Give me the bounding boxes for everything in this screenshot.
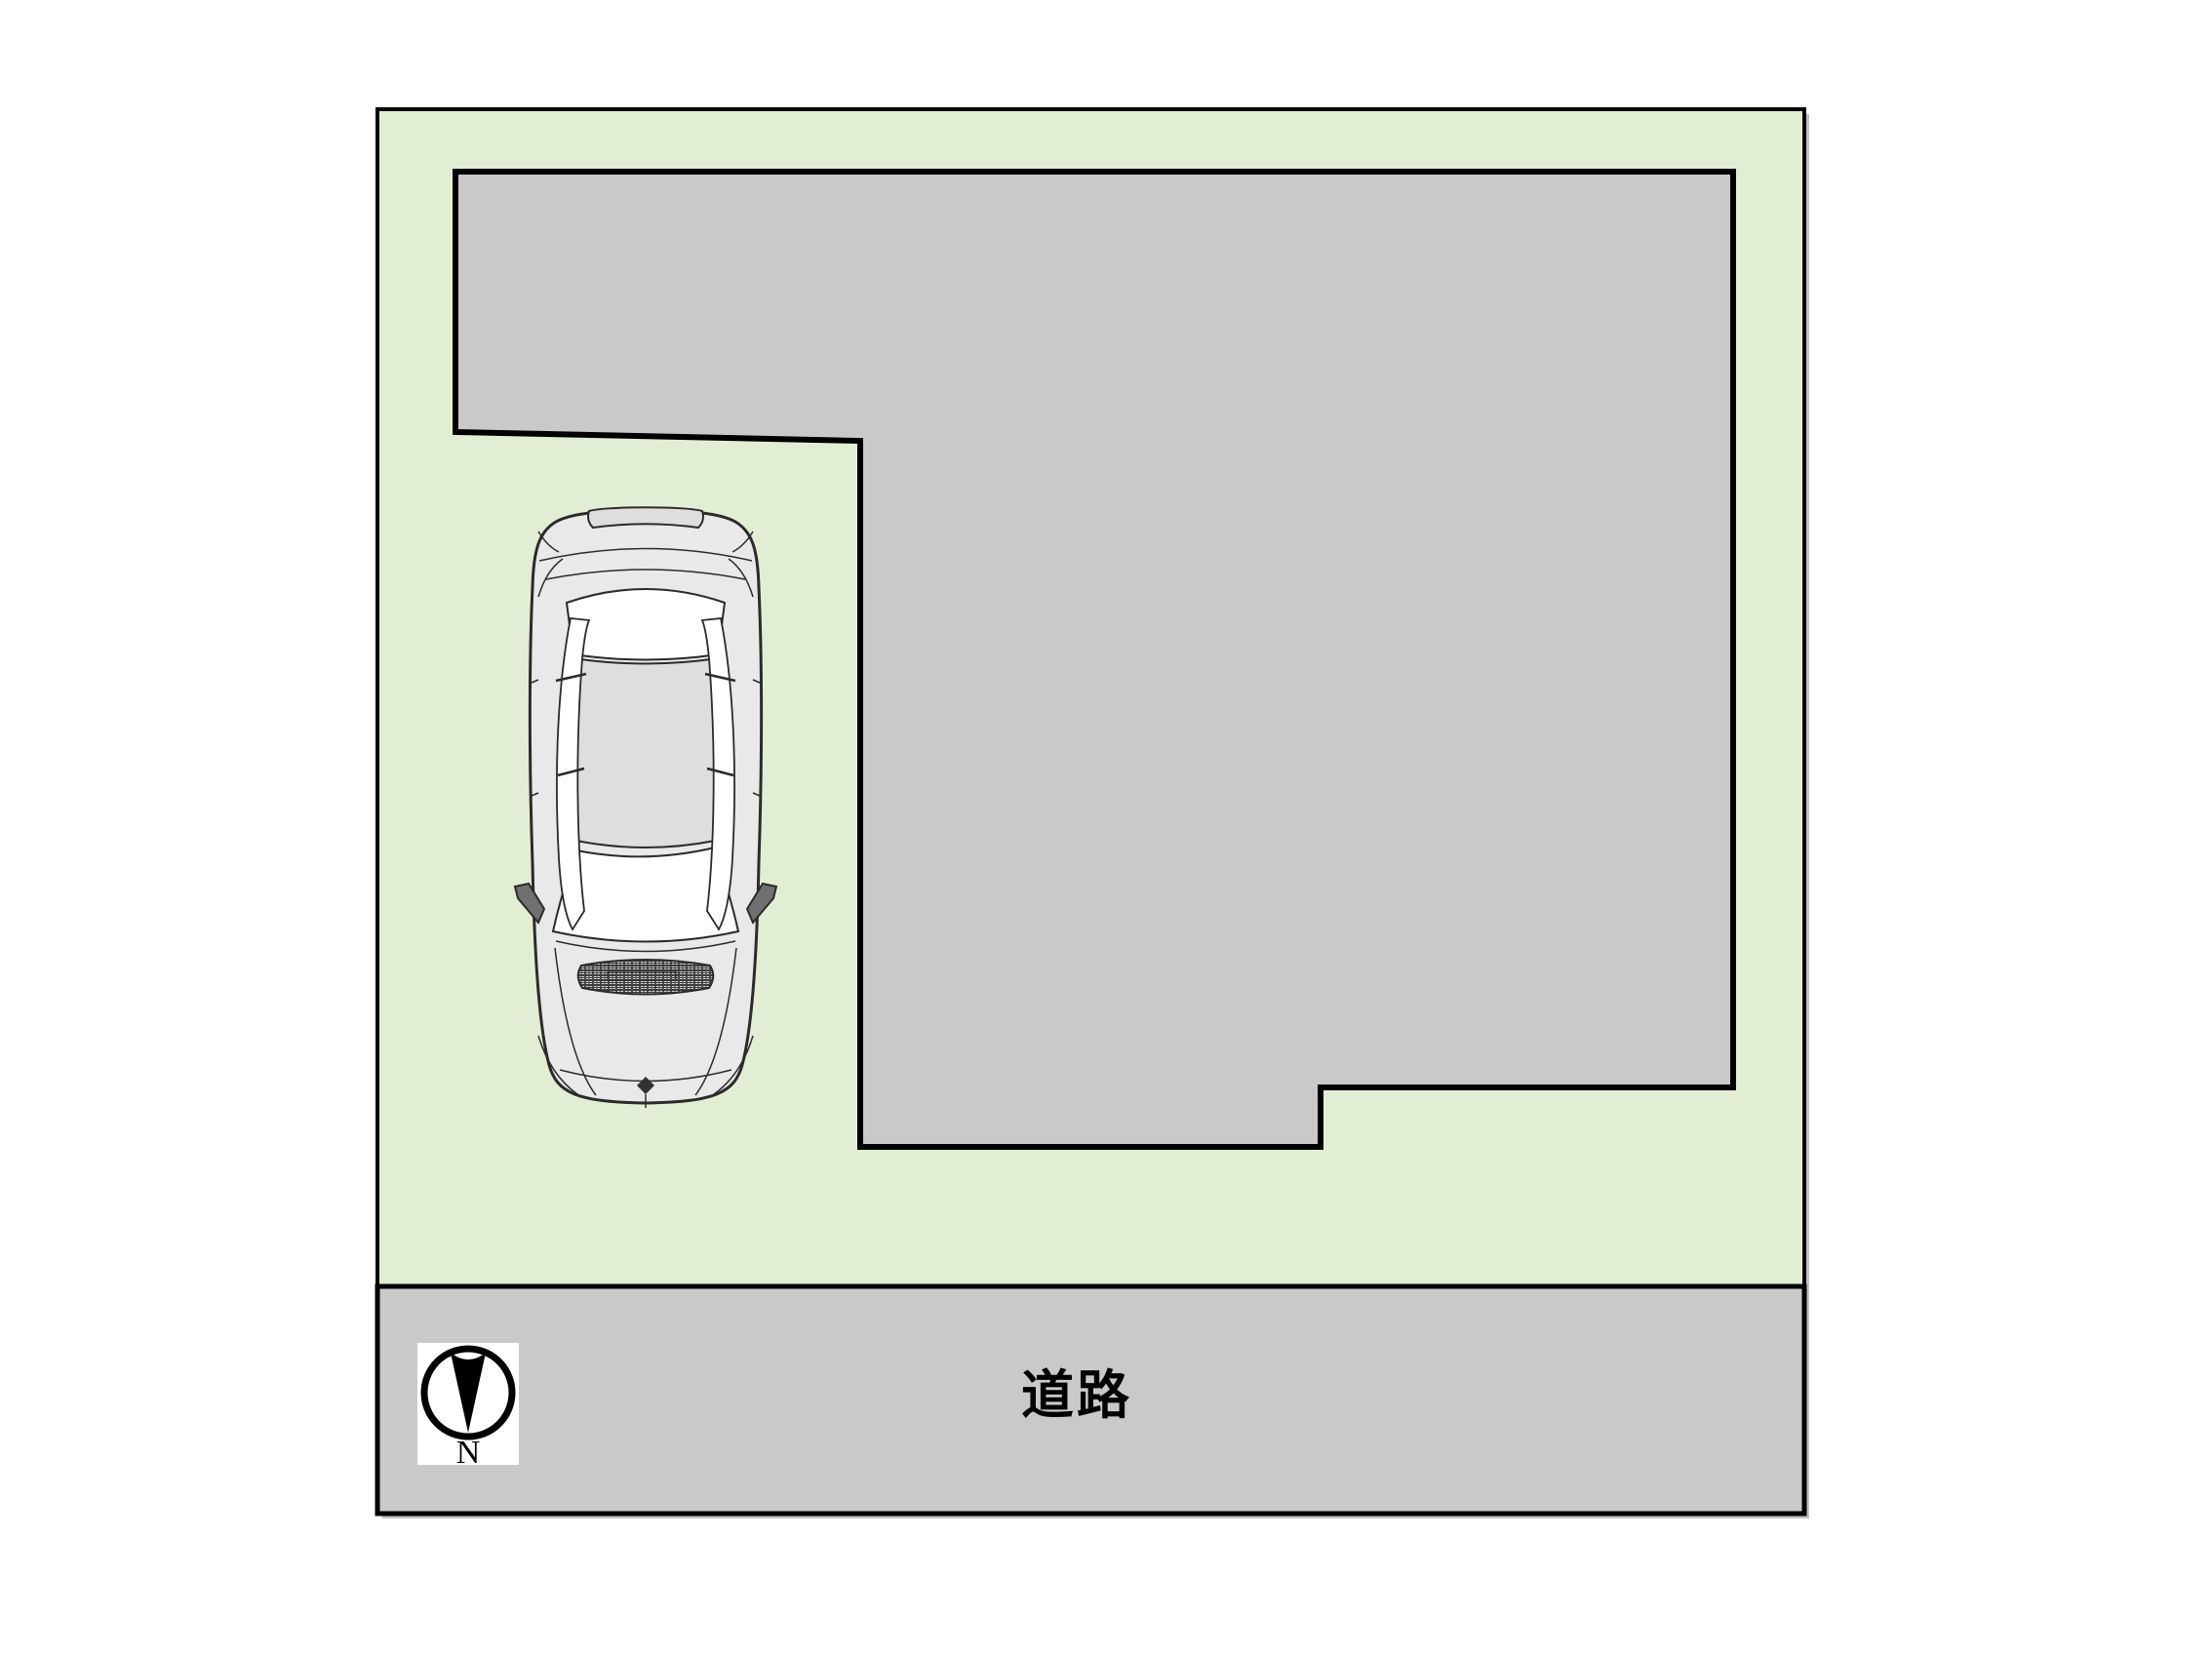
site-plan-figure: 道路 N bbox=[0, 0, 2212, 1656]
compass-north-label: N bbox=[456, 1435, 481, 1471]
car-roof bbox=[571, 658, 722, 848]
car-top-view bbox=[515, 507, 776, 1108]
road-label: 道路 bbox=[1021, 1366, 1132, 1425]
car-rear-window bbox=[567, 589, 725, 660]
site-plan-drawing: 道路 N bbox=[0, 0, 2212, 1656]
car-rear-lip bbox=[588, 507, 703, 528]
car-grille bbox=[578, 960, 714, 995]
compass: N bbox=[417, 1343, 519, 1471]
